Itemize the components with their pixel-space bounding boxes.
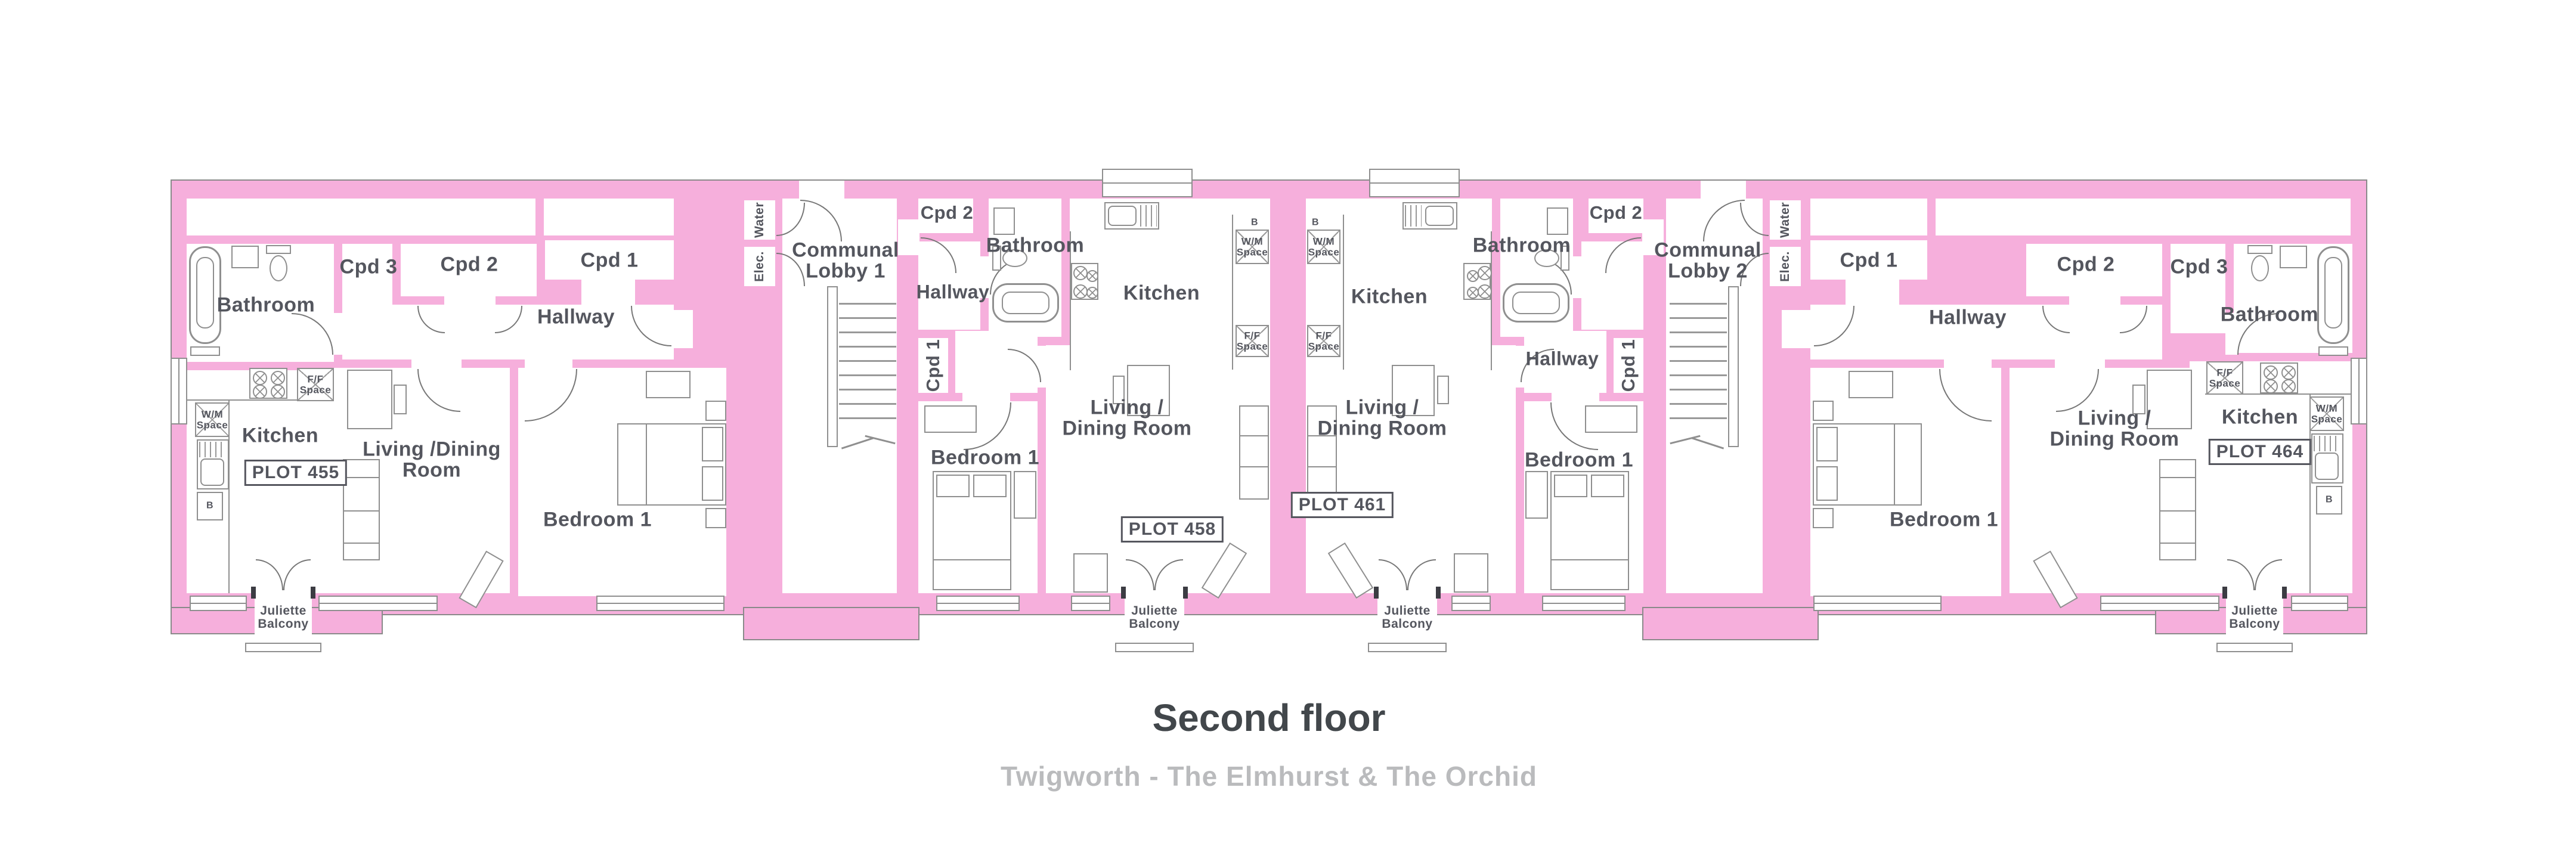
plot-badge-464: PLOT 464 xyxy=(2209,439,2311,465)
eaves-strip xyxy=(544,199,674,235)
eaves-strip xyxy=(1810,199,1927,235)
room-label-cpd2: Cpd 2 xyxy=(1590,203,1643,222)
room-label-bathroom: Bathroom xyxy=(217,295,315,315)
room-label-cpd3: Cpd 3 xyxy=(340,256,398,277)
plot-badge-461: PLOT 461 xyxy=(1291,492,1394,518)
door-jamb xyxy=(1436,587,1441,599)
balcony-rail xyxy=(2216,643,2293,652)
room-label-cpd1: Cpd 1 xyxy=(922,339,944,392)
balcony-rail xyxy=(1115,643,1194,652)
door-gap xyxy=(1573,256,1581,298)
door-gap-lobby1-entry xyxy=(799,181,844,200)
hob xyxy=(1071,263,1098,300)
balcony-rail xyxy=(245,643,321,652)
basin xyxy=(231,246,259,268)
kitchen-sink-unit xyxy=(197,439,229,489)
eaves-strip xyxy=(1936,199,2351,235)
wall-lobby1-foot xyxy=(744,608,918,639)
room-label-kitchen: Kitchen xyxy=(1351,286,1428,307)
door-jamb xyxy=(1374,587,1379,599)
room-label-cpd1: Cpd 1 xyxy=(1618,339,1639,392)
door-gap-lobby2-entry xyxy=(1701,181,1746,200)
wardrobe xyxy=(1849,371,1893,398)
window xyxy=(171,358,187,424)
room-label-bathroom: Bathroom xyxy=(2221,304,2319,325)
door-gap xyxy=(2069,296,2120,306)
room-label-cpd2: Cpd 2 xyxy=(441,254,499,275)
dining-chair xyxy=(394,385,407,414)
label-elec: Elec. xyxy=(1778,251,1792,282)
room-label-bedroom: Bedroom 1 xyxy=(931,447,1039,468)
door-gap xyxy=(525,358,572,369)
bed xyxy=(617,423,726,506)
room-label-living: Living / Dining Room xyxy=(2049,408,2179,451)
room-label-bathroom: Bathroom xyxy=(986,235,1085,256)
counter-edge xyxy=(1232,215,1233,370)
bedside-table xyxy=(705,401,726,421)
bath-step xyxy=(190,346,220,356)
kitchen-sink-unit xyxy=(1402,202,1457,230)
door-jamb xyxy=(1121,587,1126,599)
door-jamb xyxy=(2222,587,2227,599)
door-gap xyxy=(1846,280,1899,306)
armchair xyxy=(1454,553,1488,593)
bed xyxy=(1550,471,1629,590)
toilet-cistern xyxy=(266,245,291,254)
hob xyxy=(249,368,287,399)
window xyxy=(2100,596,2219,611)
stair-rail xyxy=(827,286,838,447)
window xyxy=(190,596,247,611)
room-label-lobby2: Communal Lobby 2 xyxy=(1654,240,1761,283)
basin xyxy=(2280,246,2307,268)
toilet-bowl xyxy=(2251,255,2269,281)
bed xyxy=(933,471,1011,590)
dresser xyxy=(1014,471,1036,519)
bath-step xyxy=(2318,346,2348,356)
label-ff-space: F/F Space xyxy=(1308,330,1340,351)
kitchen-sink-unit xyxy=(1104,202,1159,230)
wardrobe xyxy=(1585,405,1637,433)
room-label-cpd3: Cpd 3 xyxy=(2171,256,2228,277)
door-gap xyxy=(1552,392,1599,402)
label-boiler: B xyxy=(1312,218,1319,228)
room-label-living: Living /Dining Room xyxy=(363,439,501,482)
counter-edge xyxy=(1343,215,1344,370)
room-label-bathroom: Bathroom xyxy=(1473,235,1571,256)
plot-badge-455: PLOT 455 xyxy=(244,460,347,486)
dining-table xyxy=(347,370,392,429)
label-juliette-balcony: Juliette Balcony xyxy=(1382,605,1432,631)
label-wm-space: W/M Space xyxy=(197,409,228,430)
door-gap-entry-455 xyxy=(673,310,693,348)
label-elec: Elec. xyxy=(753,251,767,282)
label-boiler: B xyxy=(2326,495,2333,506)
room-label-kitchen: Kitchen xyxy=(242,425,318,446)
window xyxy=(1451,596,1491,611)
wall-segment xyxy=(948,338,955,393)
bed xyxy=(1813,423,1922,506)
room-label-bedroom: Bedroom 1 xyxy=(543,509,652,530)
window xyxy=(2351,358,2367,424)
label-wm-space: W/M Space xyxy=(1237,236,1268,257)
bedside-table xyxy=(1813,401,1834,421)
window xyxy=(318,596,438,611)
room-label-bedroom: Bedroom 1 xyxy=(1525,450,1633,470)
window xyxy=(1071,596,1110,611)
window xyxy=(2291,596,2348,611)
wall-lobby2-foot xyxy=(1643,608,1818,639)
room-label-kitchen: Kitchen xyxy=(2222,407,2298,427)
label-boiler: B xyxy=(206,501,213,512)
stair-rail xyxy=(1728,286,1739,447)
window xyxy=(596,596,724,611)
window xyxy=(1369,169,1460,197)
door-gap xyxy=(444,296,496,306)
door-jamb xyxy=(251,587,256,599)
room-label-living: Living / Dining Room xyxy=(1062,398,1191,440)
basin xyxy=(1547,207,1568,235)
room-label-lobby1: Communal Lobby 1 xyxy=(792,240,899,283)
bath-inner xyxy=(1002,292,1049,314)
window xyxy=(1813,596,1942,611)
label-wm-space: W/M Space xyxy=(2311,403,2343,424)
dresser xyxy=(1525,471,1548,519)
basin xyxy=(993,207,1015,235)
door-gap xyxy=(411,358,462,369)
label-water: Water xyxy=(753,202,767,238)
page-title: Second floor xyxy=(1152,696,1385,740)
page-subtitle: Twigworth - The Elmhurst & The Orchid xyxy=(1001,760,1537,792)
room-label-hallway: Hallway xyxy=(1929,307,2007,328)
door-jamb xyxy=(2282,587,2287,599)
stair-treads xyxy=(1670,303,1727,429)
eaves-strip xyxy=(187,199,535,235)
wardrobe xyxy=(924,405,977,433)
label-ff-space: F/F Space xyxy=(300,374,332,395)
room-label-cpd2: Cpd 2 xyxy=(2057,254,2115,275)
wardrobe xyxy=(646,371,691,398)
label-boiler: B xyxy=(1251,218,1258,228)
room-label-hallway: Hallway xyxy=(1526,349,1599,368)
label-juliette-balcony: Juliette Balcony xyxy=(1129,605,1179,631)
armchair xyxy=(1073,553,1108,593)
door-gap xyxy=(332,313,345,355)
plot-badge-458: PLOT 458 xyxy=(1121,516,1224,543)
bedside-table xyxy=(705,508,726,528)
bath-inner xyxy=(2324,257,2342,328)
window xyxy=(1102,169,1193,197)
bath-inner xyxy=(1512,292,1560,314)
floor-plan: Bathroom Cpd 3 Cpd 2 Cpd 1 Hallway Kitch… xyxy=(0,0,2576,843)
label-wm-space: W/M Space xyxy=(1308,236,1340,257)
balcony-rail xyxy=(1368,643,1447,652)
bedside-table xyxy=(1813,508,1834,528)
toilet-bowl xyxy=(270,255,287,281)
room-label-cpd2: Cpd 2 xyxy=(921,203,974,222)
room-label-kitchen: Kitchen xyxy=(1123,283,1200,303)
label-juliette-balcony: Juliette Balcony xyxy=(2229,605,2280,631)
window xyxy=(936,596,1020,611)
label-water: Water xyxy=(1778,202,1792,238)
door-jamb xyxy=(311,587,315,599)
room-label-cpd1: Cpd 1 xyxy=(581,250,639,271)
toilet-cistern xyxy=(2247,245,2272,254)
stair-treads xyxy=(839,303,896,429)
door-gap xyxy=(962,392,1010,402)
door-gap xyxy=(581,280,635,306)
sofa xyxy=(1239,405,1269,500)
door-gap xyxy=(1944,358,1992,369)
label-ff-space: F/F Space xyxy=(1237,330,1268,351)
label-ff-space: F/F Space xyxy=(2209,367,2241,388)
label-juliette-balcony: Juliette Balcony xyxy=(258,605,308,631)
room-label-cpd1: Cpd 1 xyxy=(1840,250,1898,271)
room-label-living: Living / Dining Room xyxy=(1317,398,1447,440)
hob xyxy=(2260,362,2298,393)
hob xyxy=(1463,263,1491,300)
room-label-bedroom: Bedroom 1 xyxy=(1890,509,1998,530)
wall-segment xyxy=(1606,338,1614,393)
room-label-hallway: Hallway xyxy=(917,282,990,302)
room-label-hallway: Hallway xyxy=(537,306,615,327)
kitchen-sink-unit xyxy=(2311,433,2343,484)
door-gap-entry-464 xyxy=(1782,310,1812,348)
door-jamb xyxy=(1183,587,1188,599)
window xyxy=(1542,596,1626,611)
sofa xyxy=(2159,459,2196,560)
door-gap-entry-458 xyxy=(898,219,919,255)
bath-inner xyxy=(196,257,214,328)
door-gap xyxy=(2055,358,2105,369)
